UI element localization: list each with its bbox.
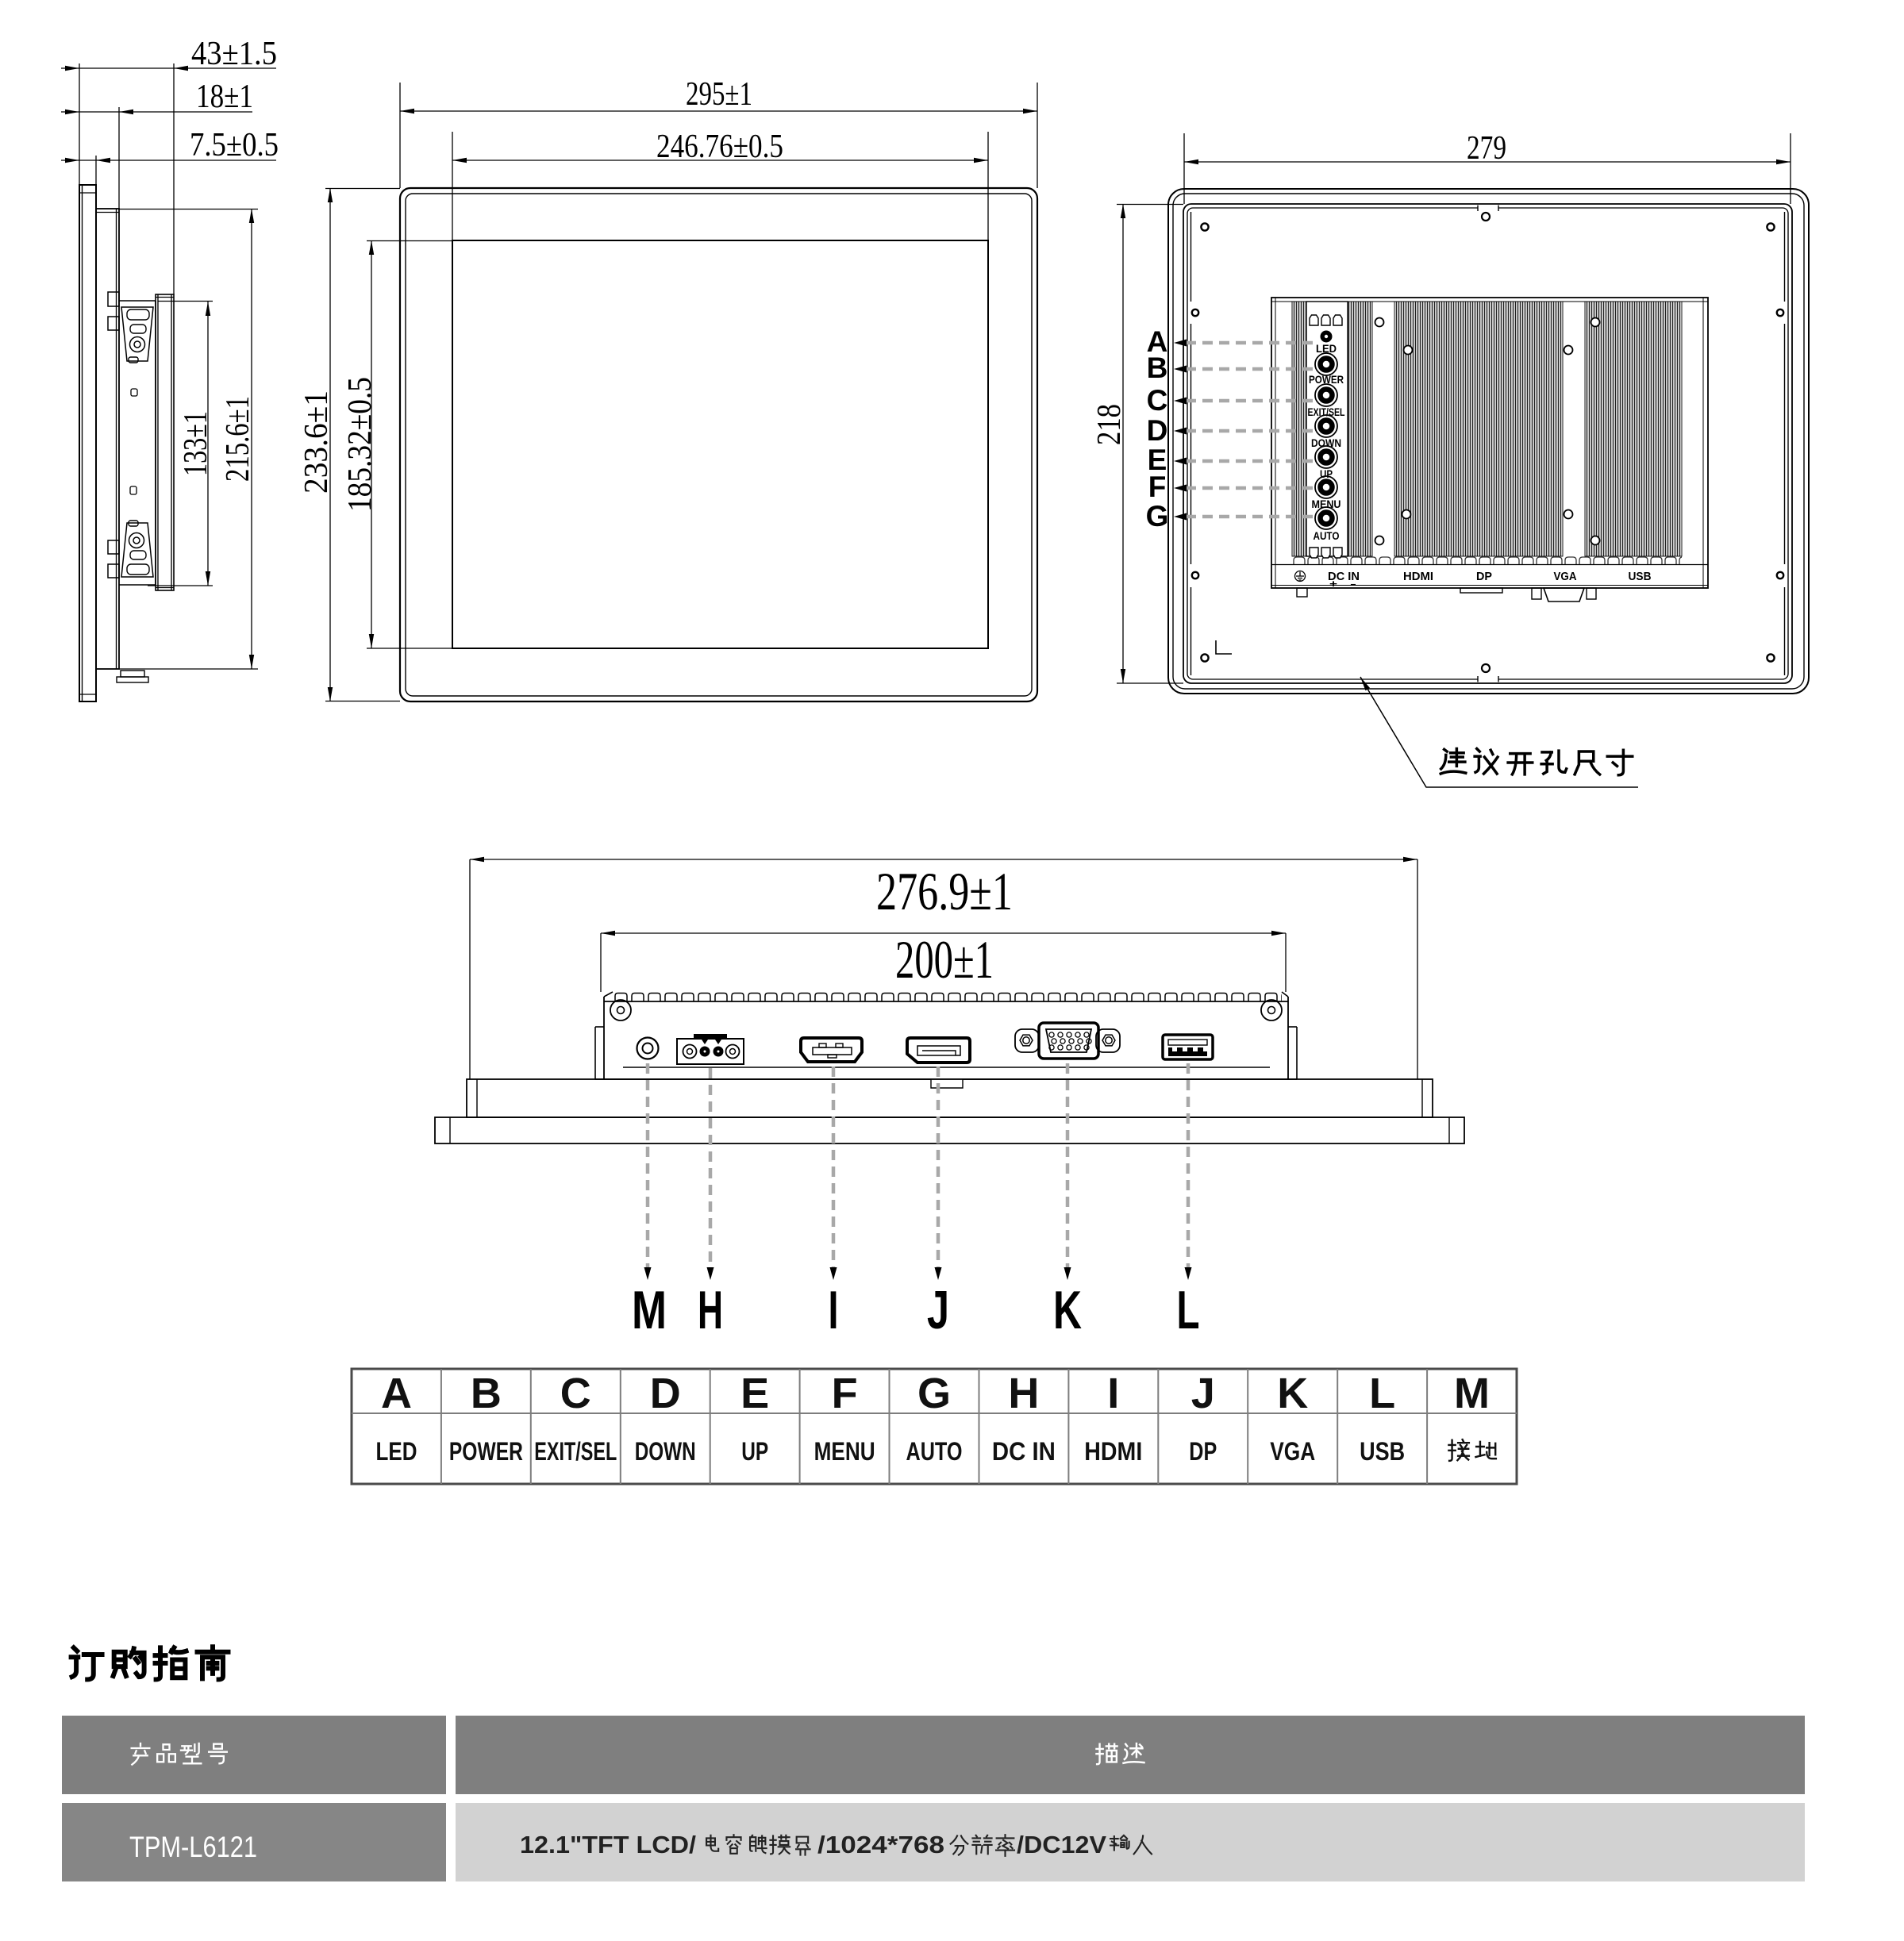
svg-text:DOWN: DOWN: [635, 1437, 696, 1466]
svg-text:D: D: [1147, 414, 1168, 447]
svg-text:B: B: [471, 1370, 502, 1417]
svg-text:18±1: 18±1: [196, 79, 253, 115]
svg-text:USB: USB: [1629, 571, 1652, 583]
svg-text:LED: LED: [376, 1437, 417, 1466]
svg-text:43±1.5: 43±1.5: [191, 36, 277, 72]
svg-text:246.76±0.5: 246.76±0.5: [656, 129, 783, 165]
svg-text:MENU: MENU: [814, 1437, 875, 1466]
svg-text:276.9±1: 276.9±1: [876, 861, 1013, 921]
svg-text:D: D: [650, 1370, 681, 1417]
svg-text:AUTO: AUTO: [906, 1437, 963, 1466]
svg-text:L: L: [1369, 1370, 1395, 1417]
svg-text:POWER: POWER: [449, 1437, 523, 1466]
svg-text:M: M: [632, 1280, 667, 1340]
svg-text:LED: LED: [1316, 342, 1337, 355]
svg-text:7.5±0.5: 7.5±0.5: [190, 127, 279, 163]
svg-text:/DC12V: /DC12V: [1017, 1831, 1106, 1858]
svg-text:DOWN: DOWN: [1311, 436, 1341, 449]
svg-text:B: B: [1147, 352, 1168, 384]
svg-text:12.1"TFT LCD/: 12.1"TFT LCD/: [520, 1831, 696, 1858]
svg-text:J: J: [927, 1280, 949, 1340]
svg-text:L: L: [1177, 1280, 1200, 1340]
svg-text:H: H: [1008, 1370, 1039, 1417]
svg-text:POWER: POWER: [1309, 373, 1344, 386]
svg-text:VGA: VGA: [1554, 571, 1577, 583]
svg-text:USB: USB: [1360, 1437, 1405, 1466]
svg-text:/1024*768: /1024*768: [817, 1831, 944, 1858]
svg-text:DC IN: DC IN: [992, 1437, 1056, 1466]
svg-text:TPM-L6121: TPM-L6121: [129, 1831, 257, 1863]
svg-text:A: A: [381, 1370, 412, 1417]
svg-text:DP: DP: [1189, 1437, 1217, 1466]
svg-text:EXIT/SEL: EXIT/SEL: [1308, 405, 1345, 418]
svg-text:K: K: [1053, 1280, 1082, 1340]
svg-text:+: +: [1329, 578, 1338, 590]
svg-text:C: C: [560, 1370, 591, 1417]
svg-text:VGA: VGA: [1270, 1437, 1315, 1466]
svg-text:279: 279: [1467, 130, 1506, 167]
svg-text:200±1: 200±1: [895, 929, 994, 990]
svg-text:F: F: [832, 1370, 858, 1417]
svg-text:DP: DP: [1476, 571, 1492, 583]
svg-text:HDMI: HDMI: [1403, 571, 1433, 583]
svg-text:M: M: [1454, 1370, 1490, 1417]
svg-text:I: I: [829, 1280, 839, 1340]
svg-text:G: G: [1146, 500, 1169, 532]
svg-text:AUTO: AUTO: [1314, 529, 1340, 542]
svg-text:-: -: [1350, 578, 1356, 590]
svg-text:J: J: [1191, 1370, 1215, 1417]
svg-text:E: E: [740, 1370, 769, 1417]
svg-text:C: C: [1147, 384, 1168, 417]
svg-text:218: 218: [1091, 404, 1128, 445]
svg-text:HDMI: HDMI: [1084, 1437, 1142, 1466]
svg-text:EXIT/SEL: EXIT/SEL: [534, 1437, 617, 1466]
svg-text:K: K: [1277, 1370, 1308, 1417]
svg-text:185.32±0.5: 185.32±0.5: [342, 377, 379, 512]
svg-text:UP: UP: [1320, 467, 1333, 480]
svg-text:H: H: [698, 1280, 723, 1340]
svg-text:G: G: [917, 1370, 951, 1417]
svg-text:233.6±1: 233.6±1: [298, 390, 335, 494]
svg-text:215.6±1: 215.6±1: [220, 396, 256, 482]
svg-text:F: F: [1148, 471, 1167, 503]
svg-text:I: I: [1107, 1370, 1119, 1417]
svg-text:133±1: 133±1: [178, 411, 214, 476]
svg-text:UP: UP: [741, 1437, 768, 1466]
svg-text:295±1: 295±1: [686, 76, 752, 113]
svg-text:MENU: MENU: [1312, 498, 1341, 510]
